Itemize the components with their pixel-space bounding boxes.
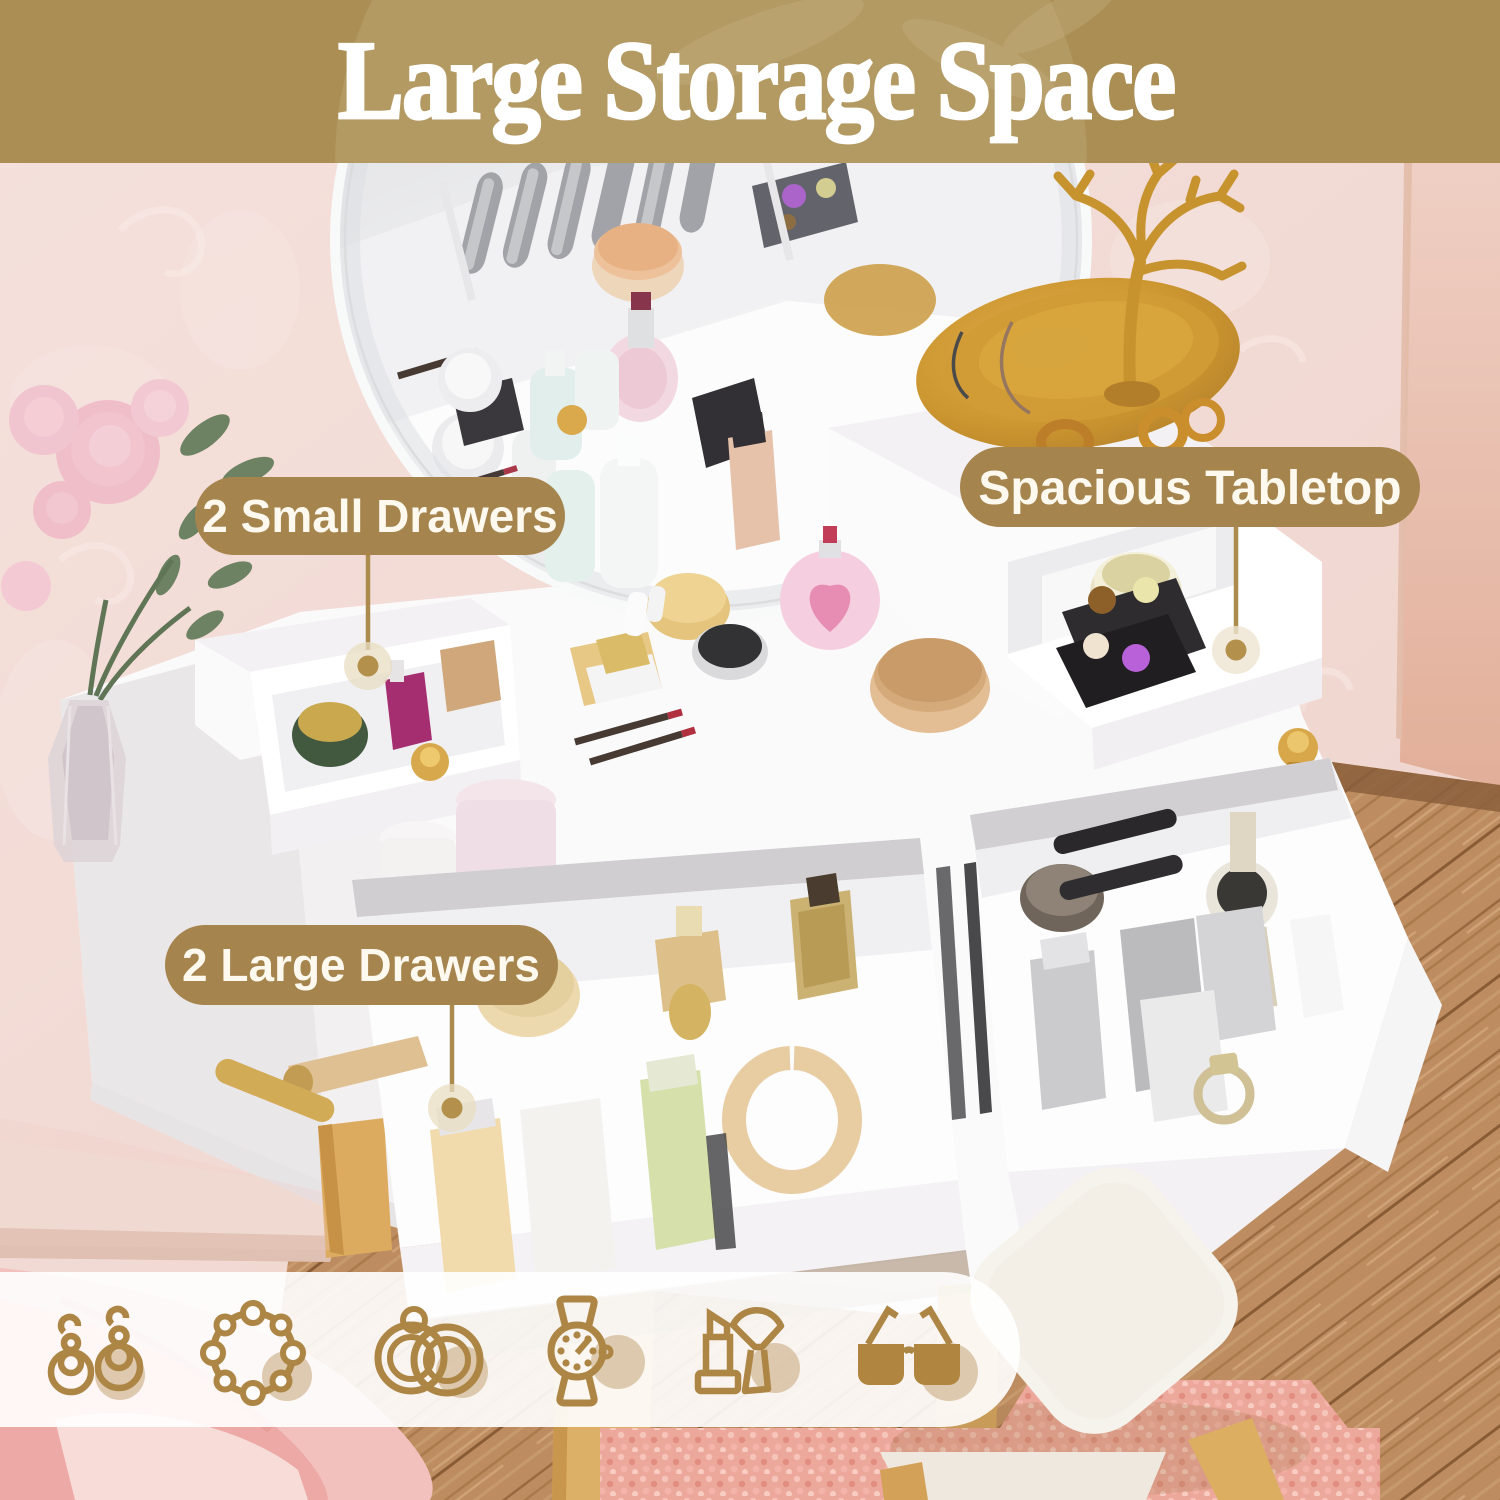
svg-text:Spacious Tabletop: Spacious Tabletop — [978, 462, 1401, 515]
svg-text:Large Storage Space: Large Storage Space — [338, 18, 1175, 142]
svg-text:2 Small Drawers: 2 Small Drawers — [202, 490, 557, 542]
svg-text:2 Large Drawers: 2 Large Drawers — [182, 939, 540, 991]
